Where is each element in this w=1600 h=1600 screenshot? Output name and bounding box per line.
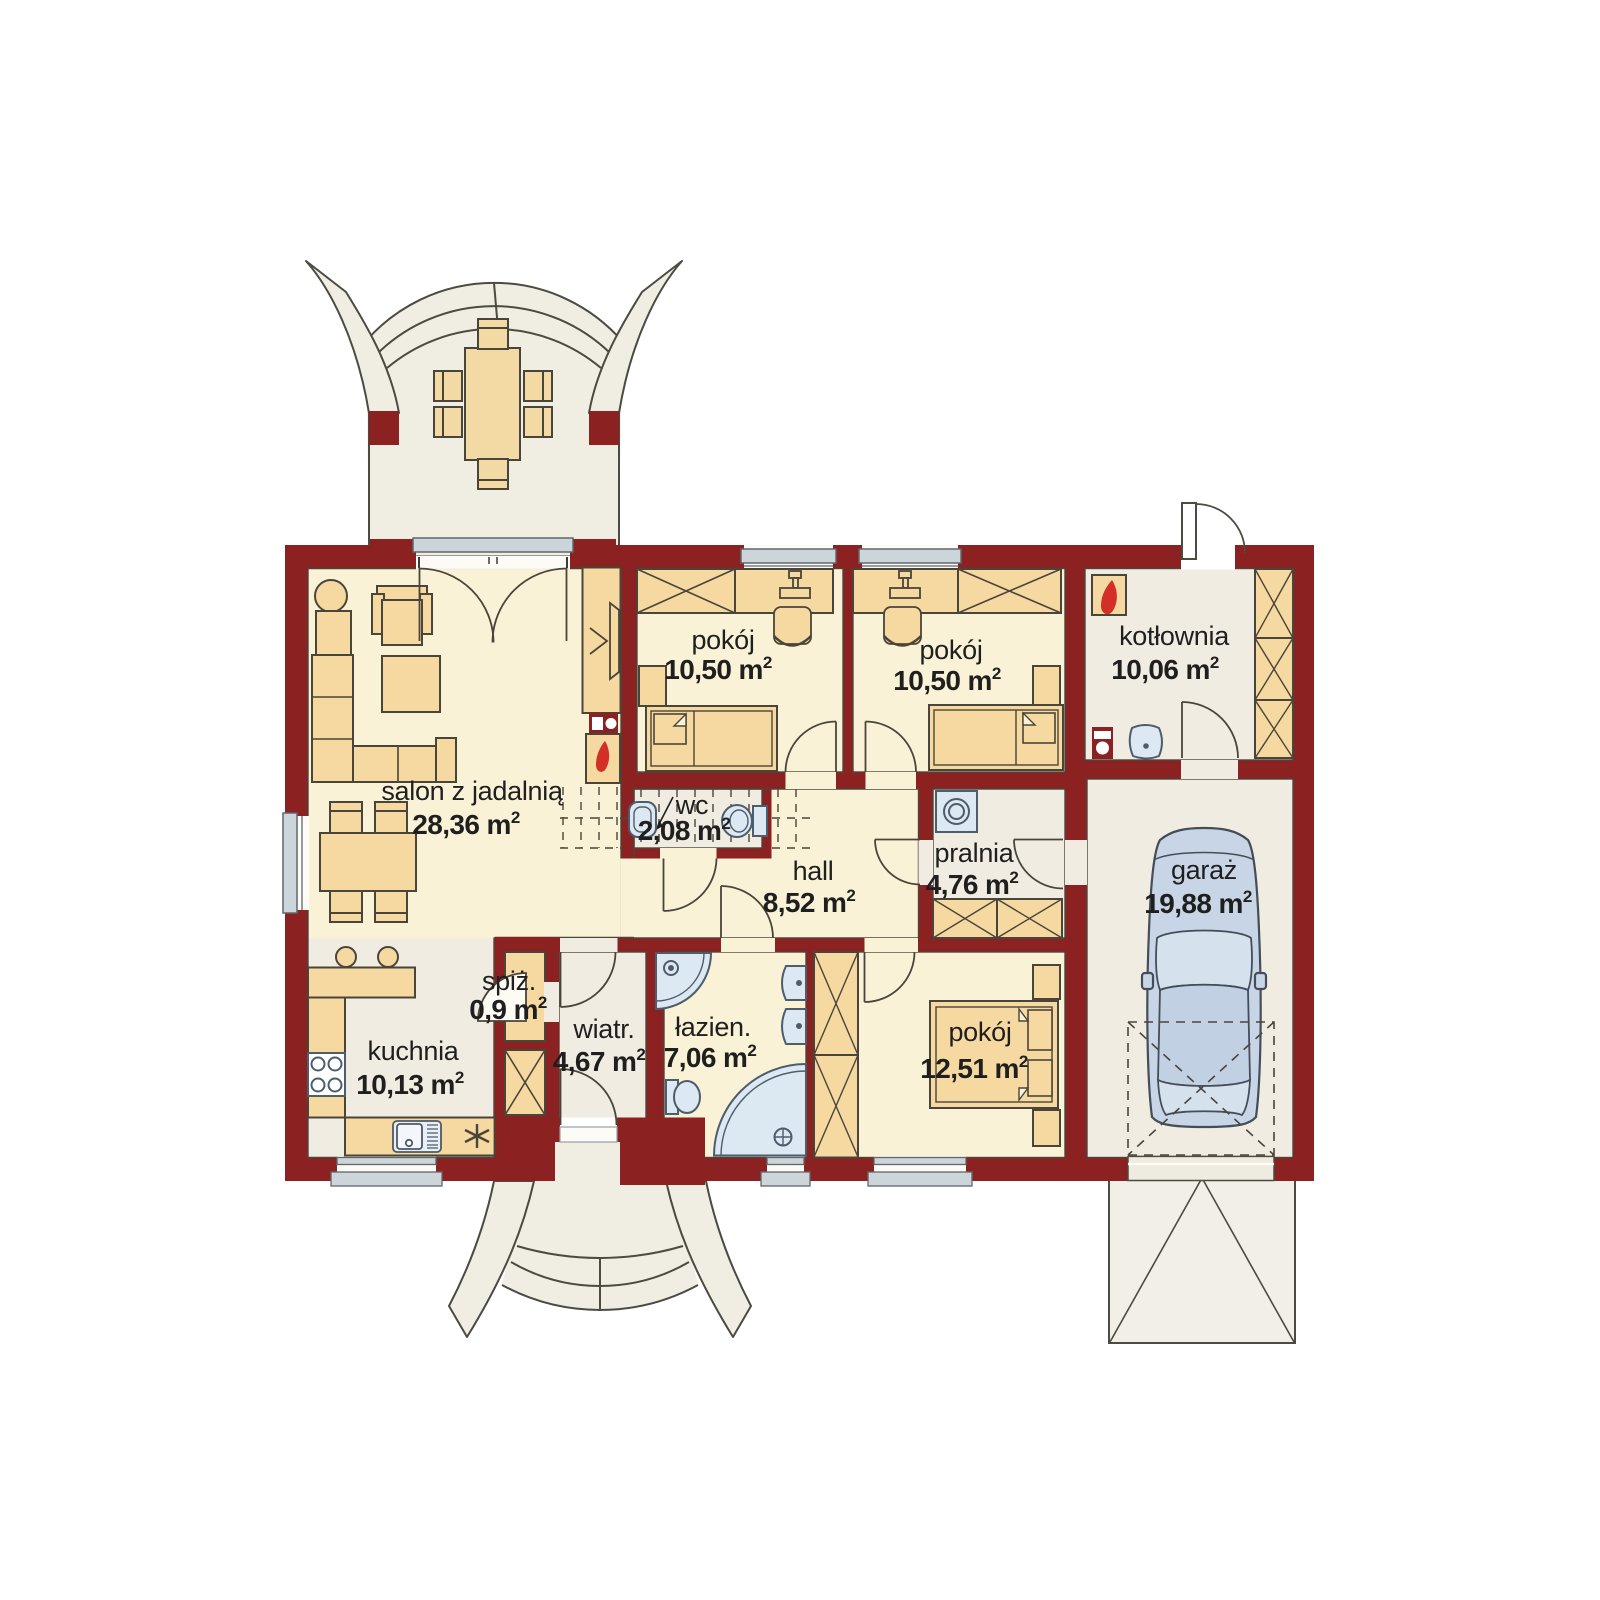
svg-text:wiatr.: wiatr. [572,1014,634,1044]
svg-text:pokój: pokój [691,625,754,655]
svg-text:pokój: pokój [948,1017,1011,1047]
svg-text:2,08 m2: 2,08 m2 [638,814,731,846]
svg-text:10,50 m2: 10,50 m2 [664,653,772,685]
svg-text:salon z jadalnią: salon z jadalnią [381,776,564,806]
svg-text:garaż: garaż [1171,855,1237,885]
svg-text:19,88 m2: 19,88 m2 [1144,887,1252,919]
svg-text:10,50 m2: 10,50 m2 [893,664,1001,696]
svg-text:kuchnia: kuchnia [368,1036,460,1066]
svg-text:4,67 m2: 4,67 m2 [553,1045,646,1077]
svg-text:8,52 m2: 8,52 m2 [763,886,856,918]
svg-text:12,51 m2: 12,51 m2 [920,1052,1028,1084]
svg-text:28,36 m2: 28,36 m2 [412,808,520,840]
svg-text:pokój: pokój [919,635,982,665]
svg-text:0,9 m2: 0,9 m2 [469,993,547,1025]
svg-text:4,76 m2: 4,76 m2 [926,868,1019,900]
svg-text:kotłownia: kotłownia [1119,621,1230,651]
svg-text:spiż.: spiż. [482,966,536,996]
svg-text:pralnia: pralnia [935,838,1015,868]
svg-text:łazien.: łazien. [675,1012,751,1042]
svg-text:7,06 m2: 7,06 m2 [664,1041,757,1073]
svg-text:10,13 m2: 10,13 m2 [356,1068,464,1100]
svg-text:10,06 m2: 10,06 m2 [1111,653,1219,685]
svg-text:hall: hall [793,856,834,886]
